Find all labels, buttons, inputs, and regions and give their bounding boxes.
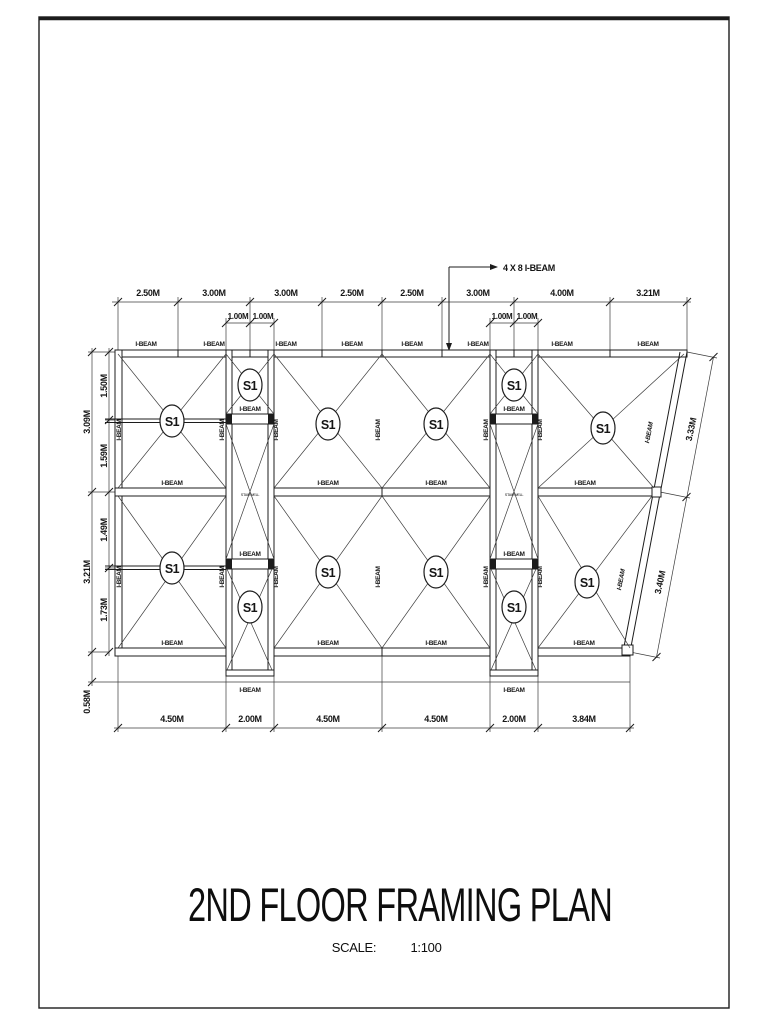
s1-marker-label: S1 — [243, 379, 258, 393]
i-beam-label: I-BEAM — [574, 480, 595, 487]
s1-marker-label: S1 — [321, 566, 336, 580]
i-beam-label: I-BEAM — [317, 640, 338, 647]
i-beam-label: I-BEAM — [637, 341, 658, 348]
dim-label: 1.00M — [492, 312, 513, 321]
i-beam-label: I-BEAM — [425, 480, 446, 487]
dim-label: 2.50M — [340, 288, 364, 298]
dim-label: 2.00M — [502, 714, 526, 724]
i-beam-label-vertical: I-BEAM — [273, 566, 280, 587]
s1-marker-label: S1 — [429, 566, 444, 580]
i-beam-label-vertical: I-BEAM — [273, 419, 280, 440]
i-beam-label: I-BEAM — [317, 480, 338, 487]
dim-label: 4.50M — [424, 714, 448, 724]
i-beam-label: I-BEAM — [161, 480, 182, 487]
i-beam-label-vertical: I-BEAM — [375, 566, 382, 587]
drawing-sheet: 2.50M 3.00M 3.00M 2.50M 2.50M 3.00M 4.00… — [0, 0, 768, 1024]
i-beam-label-vertical: I-BEAM — [483, 566, 490, 587]
i-beam-label: I-BEAM — [503, 406, 524, 413]
dim-label: 1.59M — [99, 444, 109, 468]
s1-marker-label: S1 — [165, 415, 180, 429]
framing-plan-drawing: 2.50M 3.00M 3.00M 2.50M 2.50M 3.00M 4.00… — [0, 0, 768, 1024]
dim-label: 1.00M — [517, 312, 538, 321]
drawing-title: 2ND FLOOR FRAMING PLAN — [188, 878, 612, 931]
dim-label: 2.50M — [400, 288, 424, 298]
i-beam-label: I-BEAM — [341, 341, 362, 348]
scale-value: 1:100 — [410, 940, 441, 955]
i-beam-label: I-BEAM — [503, 687, 524, 694]
s1-marker-label: S1 — [507, 379, 522, 393]
i-beam-label: I-BEAM — [161, 640, 182, 647]
dim-label: 1.00M — [228, 312, 249, 321]
s1-marker-label: S1 — [165, 562, 180, 576]
callout-4x8-ibeam: 4 X 8 I-BEAM — [446, 263, 555, 351]
i-beam-label: I-BEAM — [203, 341, 224, 348]
i-beam-label: I-BEAM — [239, 687, 260, 694]
dim-label: 3.00M — [466, 288, 490, 298]
i-beam-label-slant: I-BEAM — [616, 568, 627, 591]
i-beam-label-vertical: I-BEAM — [537, 419, 544, 440]
i-beam-label-vertical: I-BEAM — [483, 419, 490, 440]
dim-label: 3.09M — [82, 410, 92, 434]
page-border — [39, 17, 729, 1008]
title-block: 2ND FLOOR FRAMING PLAN SCALE: 1:100 — [188, 878, 612, 955]
i-beam-label-vertical: I-BEAM — [116, 419, 123, 440]
dim-label: 3.00M — [274, 288, 298, 298]
dim-label: 3.21M — [636, 288, 660, 298]
dim-label: 2.50M — [136, 288, 160, 298]
dim-label: 4.00M — [550, 288, 574, 298]
i-beam-label: I-BEAM — [551, 341, 572, 348]
stairwell-label: STAIRWELL — [241, 493, 260, 497]
i-beam-label-vertical: I-BEAM — [375, 419, 382, 440]
i-beam-label: I-BEAM — [135, 341, 156, 348]
i-beam-label-vertical: I-BEAM — [219, 419, 226, 440]
i-beam-label-vertical: I-BEAM — [219, 566, 226, 587]
i-beam-label-vertical: I-BEAM — [537, 566, 544, 587]
callout-label: 4 X 8 I-BEAM — [503, 263, 555, 273]
dim-label: 1.49M — [99, 518, 109, 542]
i-beam-label: I-BEAM — [425, 640, 446, 647]
dim-label: 1.50M — [99, 374, 109, 398]
s1-marker-label: S1 — [580, 576, 595, 590]
s1-marker-label: S1 — [429, 418, 444, 432]
x-bracing — [118, 354, 684, 670]
i-beam-label-vertical: I-BEAM — [116, 566, 123, 587]
i-beam-label: I-BEAM — [467, 341, 488, 348]
s1-marker-label: S1 — [243, 601, 258, 615]
dim-label: 3.84M — [572, 714, 596, 724]
dim-label: 4.50M — [316, 714, 340, 724]
s1-marker-label: S1 — [507, 601, 522, 615]
right-slant-dimensions: 3.33M 3.40M — [630, 352, 718, 661]
dim-label: 3.00M — [202, 288, 226, 298]
s1-marker-label: S1 — [321, 418, 336, 432]
stairwell-label: STAIRWELL — [505, 493, 524, 497]
scale-label: SCALE: — [332, 940, 376, 955]
i-beam-label: I-BEAM — [401, 341, 422, 348]
bottom-dimensions: 4.50M 2.00M 4.50M 4.50M 2.00M 3.84M — [114, 656, 634, 732]
dim-label: 1.73M — [99, 598, 109, 622]
dim-label: 1.00M — [253, 312, 274, 321]
i-beam-label: I-BEAM — [239, 551, 260, 558]
dim-label: 3.40M — [653, 570, 668, 595]
dim-label: 0.58M — [82, 690, 92, 714]
i-beam-label-slant: I-BEAM — [644, 421, 655, 444]
dim-label: 3.21M — [82, 560, 92, 584]
i-beam-label: I-BEAM — [275, 341, 296, 348]
i-beam-label: I-BEAM — [503, 551, 524, 558]
dim-label: 4.50M — [160, 714, 184, 724]
dim-label: 2.00M — [238, 714, 262, 724]
s1-marker-label: S1 — [596, 422, 611, 436]
dim-label: 3.33M — [684, 417, 699, 442]
i-beam-label: I-BEAM — [239, 406, 260, 413]
i-beam-label: I-BEAM — [573, 640, 594, 647]
